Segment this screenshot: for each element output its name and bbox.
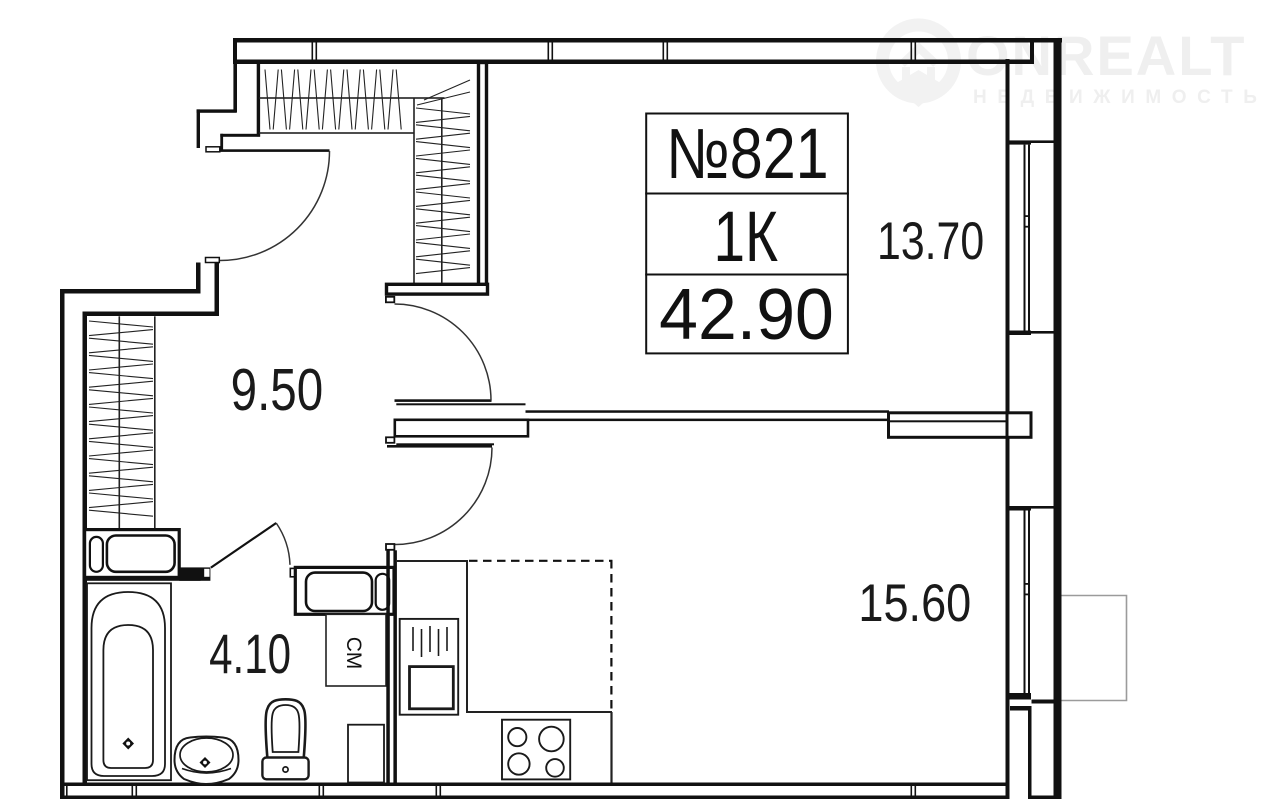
svg-text:№821: №821 <box>666 114 828 193</box>
svg-text:15.60: 15.60 <box>858 574 971 633</box>
svg-text:1К: 1К <box>713 197 778 277</box>
svg-text:13.70: 13.70 <box>877 212 984 271</box>
svg-text:42.90: 42.90 <box>659 275 834 355</box>
svg-text:НЕДВИЖИМОСТЬ: НЕДВИЖИМОСТЬ <box>973 87 1267 108</box>
svg-text:СМ: СМ <box>342 637 365 669</box>
svg-text:4.10: 4.10 <box>209 623 291 685</box>
svg-text:9.50: 9.50 <box>231 357 324 423</box>
